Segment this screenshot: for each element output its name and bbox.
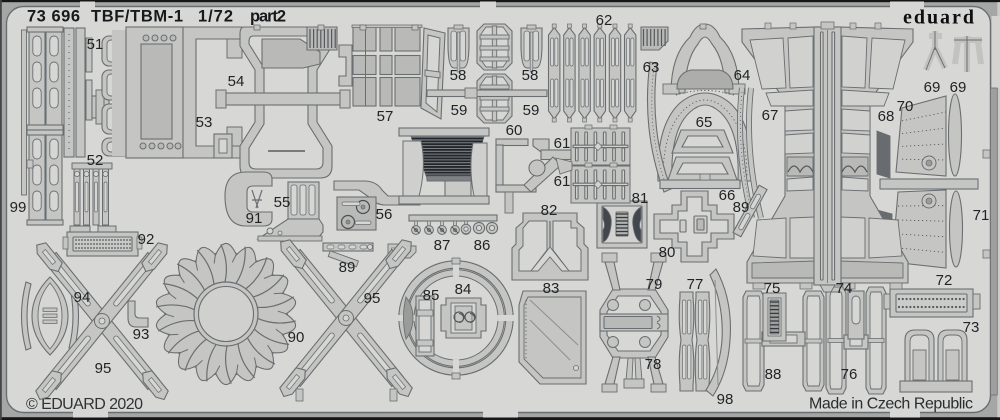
- svg-text:56: 56: [376, 206, 393, 223]
- svg-text:98: 98: [717, 391, 734, 408]
- svg-text:76: 76: [841, 366, 858, 383]
- svg-text:92: 92: [138, 231, 155, 248]
- svg-text:71: 71: [973, 207, 990, 224]
- svg-text:58: 58: [522, 67, 539, 84]
- svg-text:61: 61: [554, 173, 571, 190]
- svg-text:59: 59: [451, 102, 468, 119]
- svg-text:54: 54: [228, 73, 245, 90]
- svg-text:78: 78: [645, 356, 662, 373]
- svg-text:TBF/TBM-1: TBF/TBM-1: [91, 8, 183, 26]
- svg-text:83: 83: [543, 280, 560, 297]
- svg-text:91: 91: [246, 210, 263, 227]
- svg-text:80: 80: [659, 244, 676, 261]
- svg-text:61: 61: [554, 135, 571, 152]
- svg-text:68: 68: [878, 108, 895, 125]
- svg-text:84: 84: [455, 281, 472, 298]
- svg-text:Made in Czech Republic: Made in Czech Republic: [809, 396, 973, 413]
- svg-text:60: 60: [506, 122, 523, 139]
- svg-text:95: 95: [95, 360, 112, 377]
- svg-text:93: 93: [133, 326, 150, 343]
- svg-text:1/72: 1/72: [198, 8, 233, 26]
- svg-text:99: 99: [10, 199, 27, 216]
- svg-text:63: 63: [643, 59, 660, 76]
- svg-text:89: 89: [339, 259, 356, 276]
- svg-text:73: 73: [963, 319, 980, 336]
- svg-text:70: 70: [897, 98, 914, 115]
- svg-text:51: 51: [87, 36, 104, 53]
- svg-text:69: 69: [924, 79, 941, 96]
- svg-text:73 696: 73 696: [27, 8, 80, 26]
- svg-text:87: 87: [434, 237, 451, 254]
- svg-text:62: 62: [596, 12, 613, 29]
- svg-text:52: 52: [87, 152, 104, 169]
- svg-text:94: 94: [74, 289, 91, 306]
- svg-text:90: 90: [288, 329, 305, 346]
- svg-text:86: 86: [474, 237, 491, 254]
- svg-text:55: 55: [274, 194, 291, 211]
- svg-text:77: 77: [687, 276, 704, 293]
- svg-text:95: 95: [364, 290, 381, 307]
- svg-text:72: 72: [936, 272, 953, 289]
- svg-text:74: 74: [836, 280, 853, 297]
- svg-text:59: 59: [523, 102, 540, 119]
- svg-text:81: 81: [632, 190, 649, 207]
- svg-text:79: 79: [646, 276, 663, 293]
- svg-text:85: 85: [423, 287, 440, 304]
- svg-text:89: 89: [733, 199, 750, 216]
- svg-text:58: 58: [450, 67, 467, 84]
- svg-text:part2: part2: [250, 8, 286, 26]
- svg-text:88: 88: [765, 366, 782, 383]
- svg-text:75: 75: [764, 280, 781, 297]
- svg-text:69: 69: [950, 79, 967, 96]
- svg-text:82: 82: [541, 202, 558, 219]
- svg-text:64: 64: [734, 67, 751, 84]
- svg-text:67: 67: [762, 107, 779, 124]
- svg-text:53: 53: [196, 114, 213, 131]
- svg-text:57: 57: [377, 108, 394, 125]
- svg-text:65: 65: [696, 114, 713, 131]
